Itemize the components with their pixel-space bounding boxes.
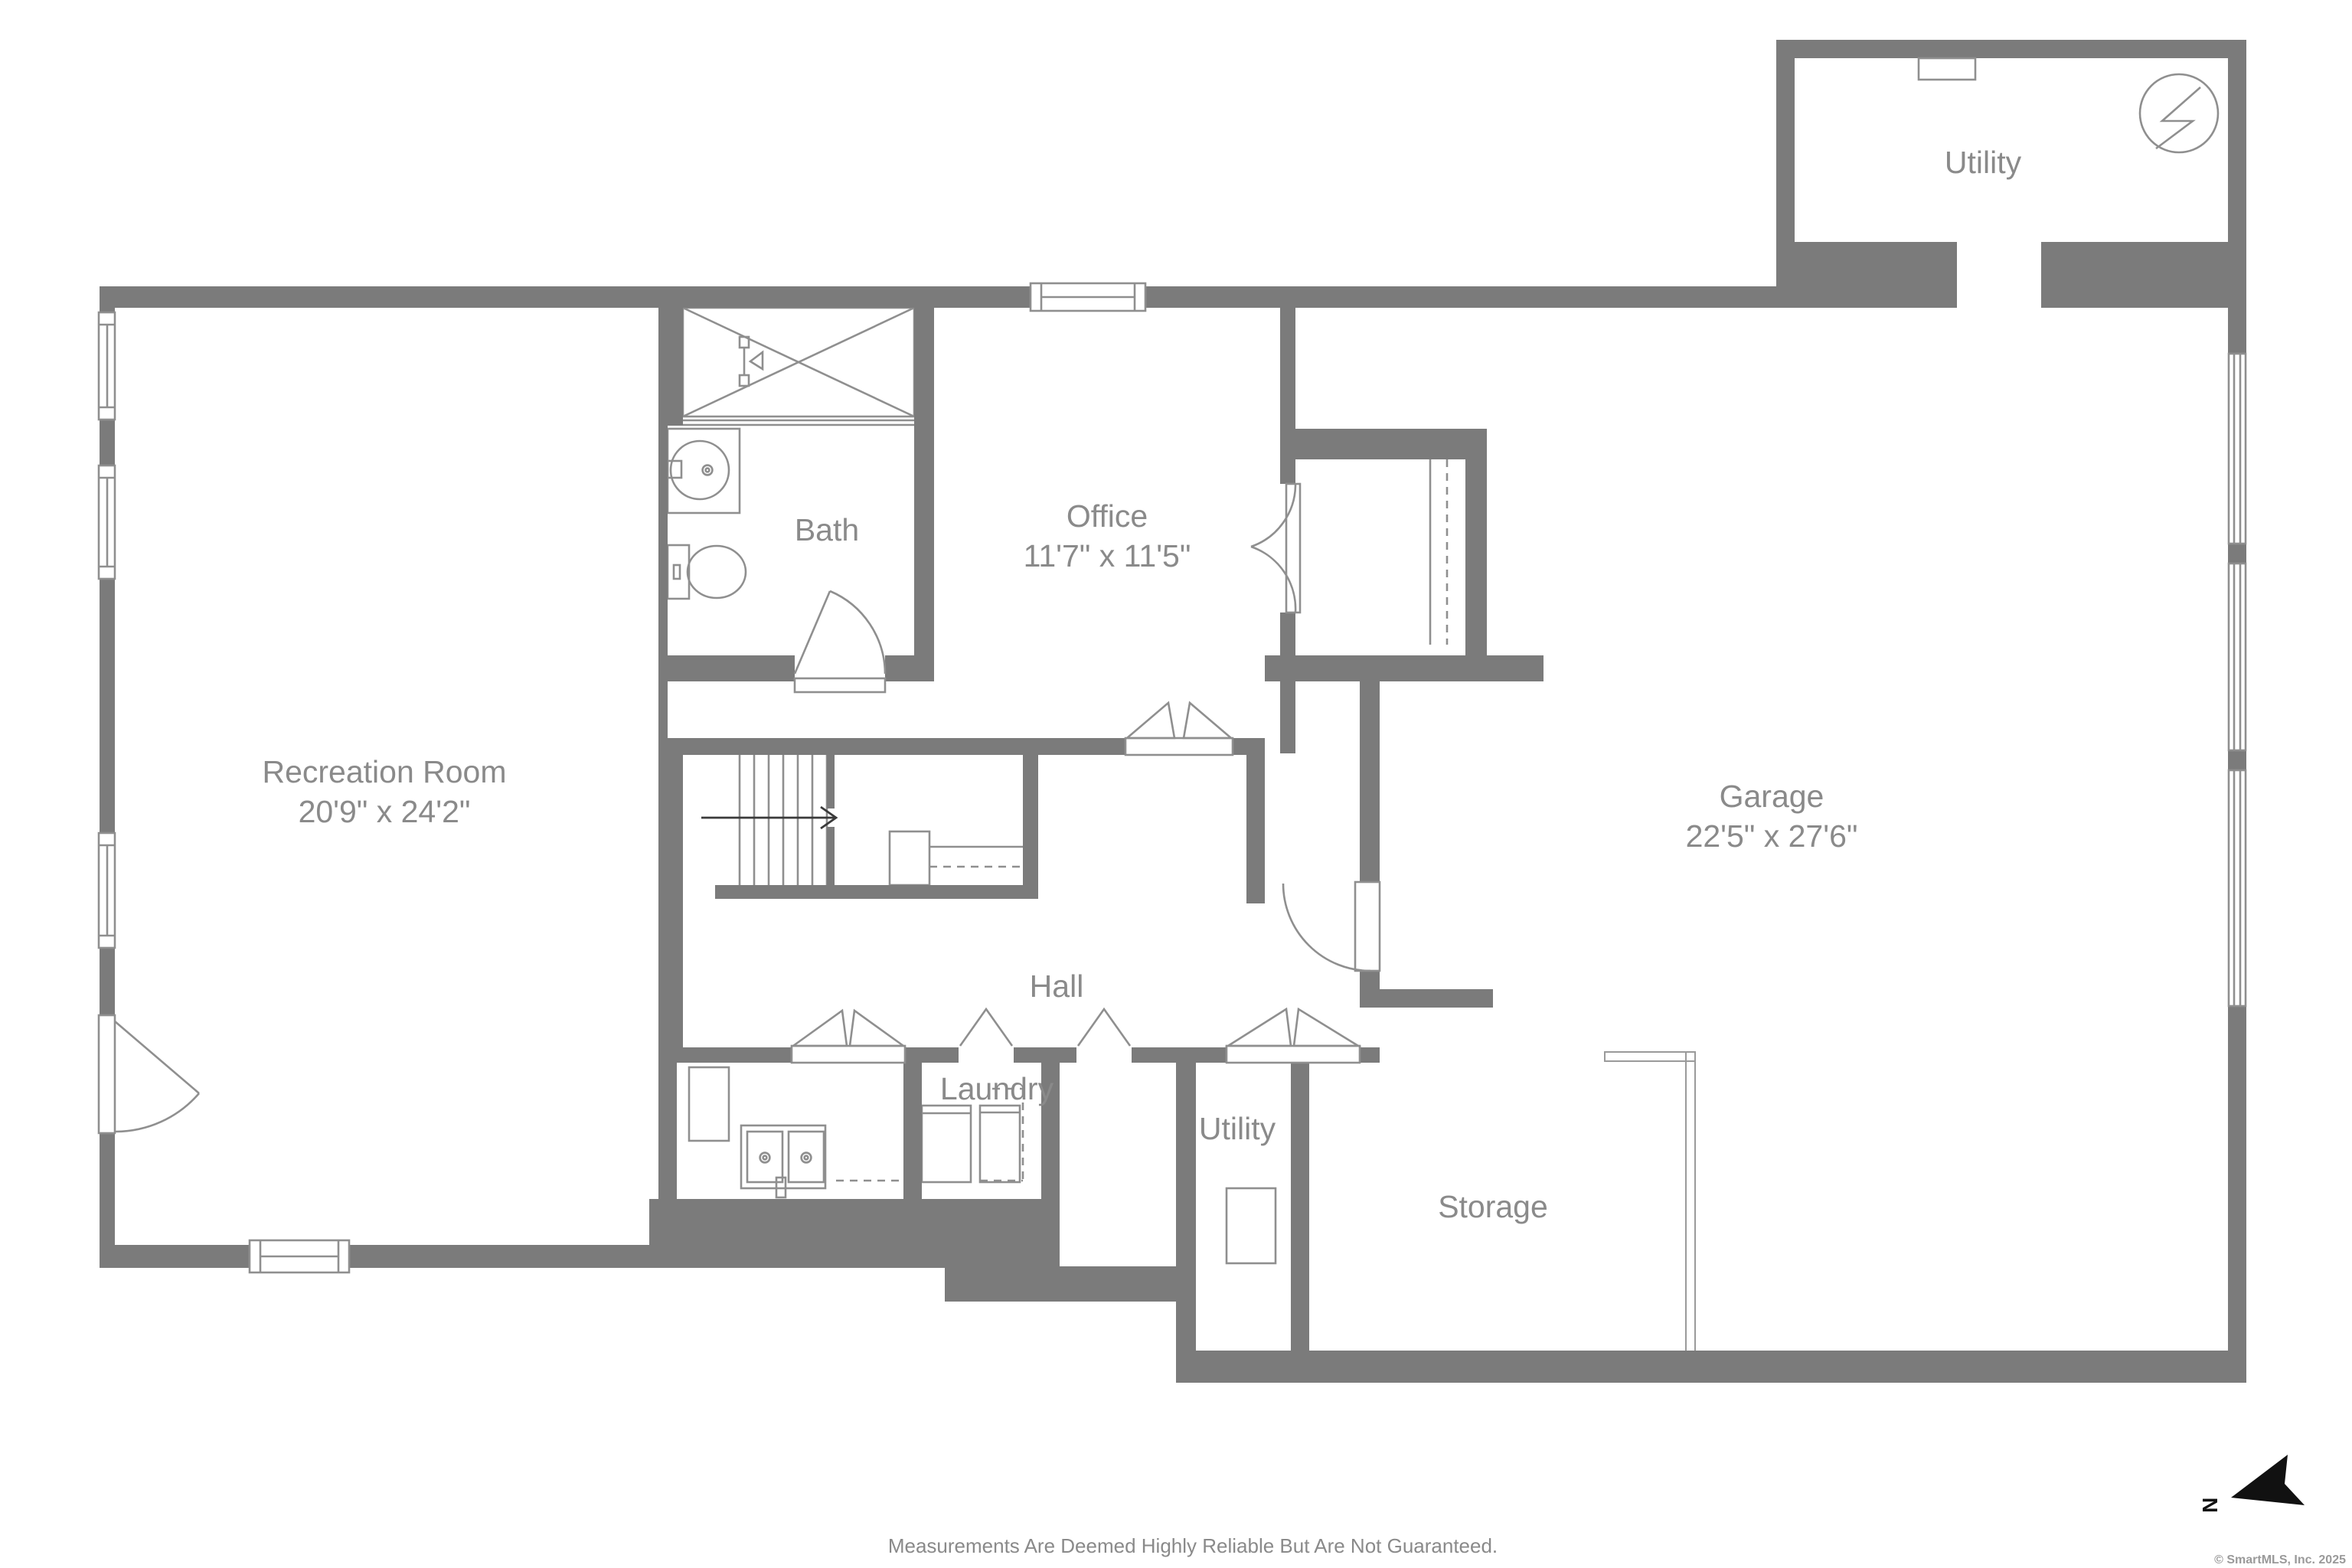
wall xyxy=(1776,40,2246,58)
wall xyxy=(658,1047,793,1063)
wall xyxy=(2228,544,2246,563)
window xyxy=(1919,58,1975,80)
window xyxy=(1031,283,1145,311)
disclaimer-text: Measurements Are Deemed Highly Reliable … xyxy=(888,1534,1498,1557)
wall xyxy=(1280,308,1295,484)
wall xyxy=(1280,612,1295,753)
wall xyxy=(1360,680,1380,882)
window xyxy=(99,833,115,948)
wall xyxy=(2228,750,2246,770)
wall xyxy=(658,738,1127,755)
window xyxy=(250,1240,349,1272)
window xyxy=(99,465,115,579)
wall xyxy=(1291,1063,1309,1383)
wall xyxy=(100,948,115,1015)
window xyxy=(99,312,115,420)
wall xyxy=(827,753,835,808)
north-label: N xyxy=(2198,1498,2222,1513)
wall xyxy=(1014,1047,1076,1063)
wall xyxy=(658,426,668,738)
room-label-office: Office xyxy=(1067,498,1148,534)
room-label-utility-top: Utility xyxy=(1945,145,2022,180)
wall xyxy=(658,738,683,1063)
room-label-hall: Hall xyxy=(1030,969,1084,1004)
wall xyxy=(1176,1351,2246,1383)
wall xyxy=(2228,1006,2246,1383)
wall xyxy=(1132,1047,1228,1063)
room-dims-garage: 22'5" x 27'6" xyxy=(1686,818,1858,854)
wall xyxy=(715,885,1038,899)
wall xyxy=(945,1199,1060,1302)
room-dims-recreation: 20'9" x 24'2" xyxy=(299,794,471,829)
wall xyxy=(1265,655,1543,681)
wall xyxy=(1295,429,1487,459)
room-label-utility-bottom: Utility xyxy=(1199,1111,1276,1146)
wall xyxy=(100,1245,250,1268)
wall xyxy=(2228,40,2246,354)
wall xyxy=(1358,1047,1380,1063)
wall xyxy=(100,286,115,312)
room-label-laundry: Laundry xyxy=(940,1071,1054,1106)
wall xyxy=(649,1199,945,1268)
room-dims-office: 11'7" x 11'5" xyxy=(1024,538,1191,573)
room-label-bath: Bath xyxy=(795,512,859,547)
wall xyxy=(100,579,115,833)
wall xyxy=(1060,1266,1176,1302)
wall xyxy=(827,827,835,885)
wall xyxy=(1176,1063,1196,1383)
room-label-garage: Garage xyxy=(1720,779,1824,814)
wall xyxy=(1776,242,1957,308)
wall xyxy=(903,1047,959,1063)
wall xyxy=(100,420,115,465)
wall xyxy=(2041,242,2228,308)
wall xyxy=(658,1063,677,1199)
wall xyxy=(903,1063,922,1199)
floor-plan: Recreation Room 20'9" x 24'2" Bath Offic… xyxy=(0,0,2352,1568)
credit-text: © SmartMLS, Inc. 2025 xyxy=(2214,1553,2346,1566)
wall xyxy=(885,655,934,681)
garage-window-strip xyxy=(2229,770,2246,1006)
wall xyxy=(1360,971,1380,1008)
wall xyxy=(1380,989,1493,1008)
wall xyxy=(1465,459,1487,666)
garage-window-strip xyxy=(2229,563,2246,750)
garage-window-strip xyxy=(2229,354,2246,544)
wall xyxy=(1246,738,1265,903)
wall xyxy=(658,308,683,426)
room-label-recreation: Recreation Room xyxy=(262,754,506,789)
wall xyxy=(100,286,1031,308)
room-label-storage: Storage xyxy=(1438,1189,1548,1224)
wall xyxy=(349,1245,683,1268)
wall xyxy=(658,655,795,681)
wall xyxy=(914,308,934,681)
wall xyxy=(1023,753,1038,885)
